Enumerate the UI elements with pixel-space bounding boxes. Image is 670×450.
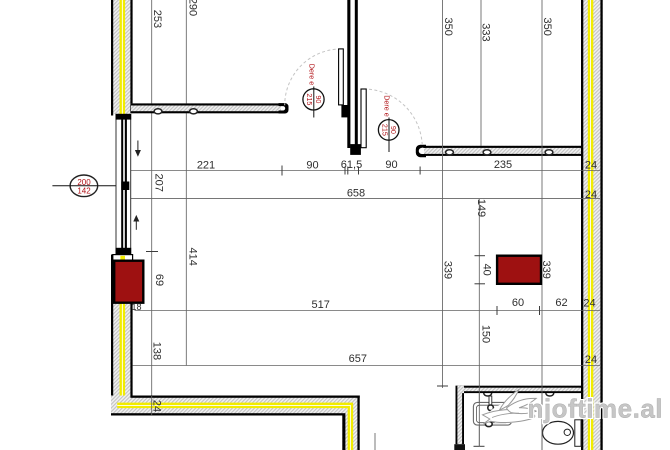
svg-text:253: 253: [151, 10, 163, 28]
svg-text:207: 207: [153, 174, 165, 192]
svg-text:24: 24: [583, 298, 595, 310]
svg-text:Dere e: Dere e: [382, 95, 391, 117]
svg-text:350: 350: [541, 18, 553, 36]
svg-text:657: 657: [349, 353, 367, 365]
svg-text:40: 40: [481, 264, 493, 276]
svg-text:24: 24: [585, 160, 597, 172]
svg-text:414: 414: [187, 248, 199, 266]
svg-text:339: 339: [441, 261, 453, 279]
svg-text:60: 60: [512, 297, 524, 309]
svg-text:333: 333: [480, 23, 492, 41]
svg-text:90: 90: [314, 95, 323, 103]
svg-text:235: 235: [494, 159, 512, 171]
svg-text:24: 24: [585, 354, 597, 366]
svg-text:221: 221: [197, 159, 215, 171]
svg-text:150: 150: [480, 325, 492, 343]
svg-text:90: 90: [385, 159, 397, 171]
svg-text:215: 215: [380, 124, 389, 136]
svg-text:njoftime.al: njoftime.al: [528, 394, 664, 424]
svg-text:149: 149: [475, 199, 487, 217]
svg-text:24: 24: [585, 189, 597, 201]
svg-text:350: 350: [442, 18, 454, 36]
svg-text:339: 339: [540, 261, 552, 279]
svg-text:Dere e: Dere e: [308, 64, 317, 86]
svg-text:215: 215: [305, 93, 314, 105]
svg-text:24: 24: [151, 400, 163, 412]
svg-text:62: 62: [555, 297, 567, 309]
svg-text:142: 142: [77, 187, 91, 196]
svg-text:290: 290: [186, 0, 198, 16]
svg-text:61,5: 61,5: [341, 159, 362, 171]
svg-text:69: 69: [153, 274, 165, 286]
svg-text:658: 658: [347, 187, 365, 199]
svg-text:90: 90: [306, 159, 318, 171]
svg-text:138: 138: [151, 342, 163, 360]
svg-text:90: 90: [389, 126, 398, 134]
svg-text:517: 517: [312, 299, 330, 311]
svg-text:18: 18: [131, 302, 141, 312]
